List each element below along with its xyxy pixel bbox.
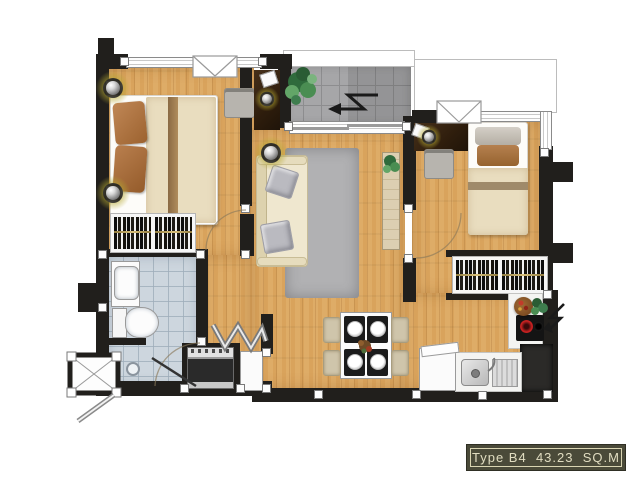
plant-icon xyxy=(383,155,400,173)
floorplan-canvas: Type B4 43.23 SQ.M xyxy=(0,0,640,480)
entry-door-leaf xyxy=(78,395,114,421)
door-arcs xyxy=(155,210,461,386)
bathroom-door-leaf xyxy=(152,358,196,386)
unit-area-unit: SQ.M xyxy=(583,450,620,465)
label-text: Type B4 43.23 SQ.M xyxy=(472,450,620,465)
folding-door-icon xyxy=(213,325,266,348)
food-icon xyxy=(518,301,528,311)
unit-type: Type B4 xyxy=(472,450,527,465)
entry-hatched-box xyxy=(67,352,121,397)
bedroom1-door-arc xyxy=(206,210,246,250)
zigzag-arrow-icon xyxy=(328,95,378,115)
bedroom2-door-arc xyxy=(416,213,461,258)
herbs-icon xyxy=(531,298,548,315)
faucet-icon xyxy=(488,358,494,371)
symbol-overlay xyxy=(0,0,640,480)
unit-type-label: Type B4 43.23 SQ.M xyxy=(466,444,626,471)
centerpiece-icon xyxy=(358,340,372,354)
unit-area: 43.23 xyxy=(536,450,574,465)
plant-icon xyxy=(285,67,317,105)
